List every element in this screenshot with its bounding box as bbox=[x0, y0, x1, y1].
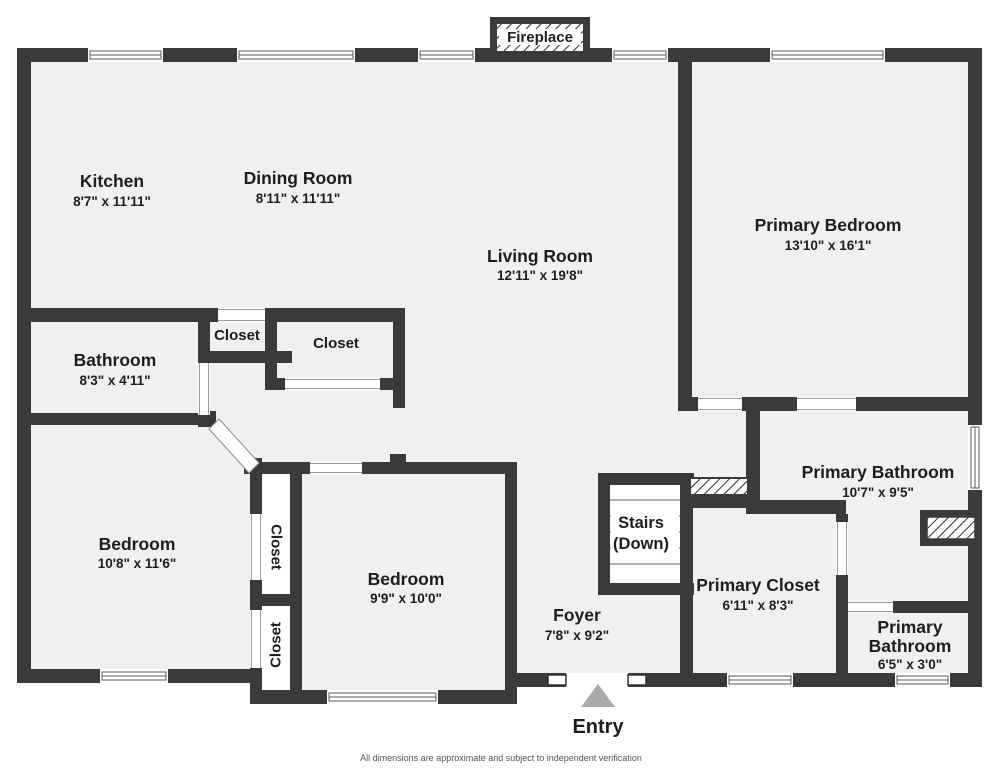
room-label-closet-vertical-lower: Closet bbox=[268, 622, 285, 668]
room-label-bedroom-middle: Bedroom bbox=[368, 569, 445, 589]
window bbox=[968, 425, 982, 490]
room-dims-living-room: 12'11" x 19'8" bbox=[497, 268, 583, 283]
room-label-closet-vertical-upper: Closet bbox=[268, 524, 285, 570]
stairs-label-line2: (Down) bbox=[613, 535, 669, 553]
room-dims-bedroom-left: 10'8" x 11'6" bbox=[98, 556, 177, 571]
room-label-dining-room: Dining Room bbox=[244, 168, 353, 188]
room-label-living-room: Living Room bbox=[487, 246, 593, 266]
window bbox=[727, 673, 793, 687]
window bbox=[895, 673, 950, 687]
fireplace-label: Fireplace bbox=[507, 29, 573, 46]
floor-plan-page: Fireplace Stairs (Down) Kitchen 8'7" x 1… bbox=[0, 0, 1002, 768]
room-dims-kitchen: 8'7" x 11'11" bbox=[73, 194, 151, 209]
room-label-primary-closet: Primary Closet bbox=[696, 575, 820, 595]
window bbox=[237, 48, 355, 62]
stair-void-hatch bbox=[690, 478, 748, 495]
room-label-bathroom: Bathroom bbox=[74, 350, 157, 370]
window bbox=[612, 48, 668, 62]
window bbox=[418, 48, 475, 62]
door-opening bbox=[848, 601, 893, 613]
fireplace: Fireplace bbox=[490, 17, 590, 57]
door-opening bbox=[250, 514, 262, 580]
room-dims-primary-bedroom: 13'10" x 16'1" bbox=[785, 238, 872, 253]
entry-door bbox=[548, 673, 646, 687]
stairs-label-line1: Stairs bbox=[618, 514, 664, 532]
window bbox=[88, 48, 163, 62]
room-label-primary-bedroom: Primary Bedroom bbox=[755, 215, 902, 235]
footer-disclaimer: All dimensions are approximate and subje… bbox=[360, 753, 642, 763]
door-opening bbox=[250, 610, 262, 668]
room-label-kitchen: Kitchen bbox=[80, 171, 144, 191]
room-dims-foyer: 7'8" x 9'2" bbox=[545, 628, 609, 643]
room-dims-primary-bathroom-small: 6'5" x 3'0" bbox=[878, 657, 942, 672]
shower-hatch bbox=[927, 517, 975, 539]
room-dims-bathroom: 8'3" x 4'11" bbox=[79, 373, 150, 388]
door-opening bbox=[698, 397, 742, 411]
room-label-primary-bathroom: Primary Bathroom bbox=[802, 462, 955, 482]
room-label-primary-bathroom-small-line1: Primary bbox=[877, 617, 942, 637]
window bbox=[100, 669, 168, 683]
room-dims-primary-bathroom: 10'7" x 9'5" bbox=[842, 485, 914, 500]
room-label-bedroom-left: Bedroom bbox=[99, 534, 176, 554]
room-label-closet-hall-small: Closet bbox=[214, 327, 260, 344]
door-opening bbox=[310, 462, 362, 474]
door-opening bbox=[198, 363, 210, 415]
room-label-primary-bathroom-small-line2: Bathroom bbox=[869, 636, 952, 656]
window bbox=[770, 48, 885, 62]
window bbox=[327, 690, 438, 704]
room-label-closet-hall-large: Closet bbox=[313, 335, 359, 352]
door-opening bbox=[836, 522, 848, 575]
room-dims-bedroom-middle: 9'9" x 10'0" bbox=[370, 591, 442, 606]
door-opening bbox=[218, 308, 265, 322]
door-opening bbox=[797, 397, 856, 411]
room-dims-primary-closet: 6'11" x 8'3" bbox=[722, 598, 793, 613]
room-label-foyer: Foyer bbox=[553, 605, 601, 625]
door-opening bbox=[285, 378, 380, 390]
entry-label: Entry bbox=[572, 716, 624, 738]
room-dims-dining-room: 8'11" x 11'11" bbox=[256, 191, 341, 206]
floor-plan-canvas: Fireplace Stairs (Down) Kitchen 8'7" x 1… bbox=[0, 0, 1002, 768]
